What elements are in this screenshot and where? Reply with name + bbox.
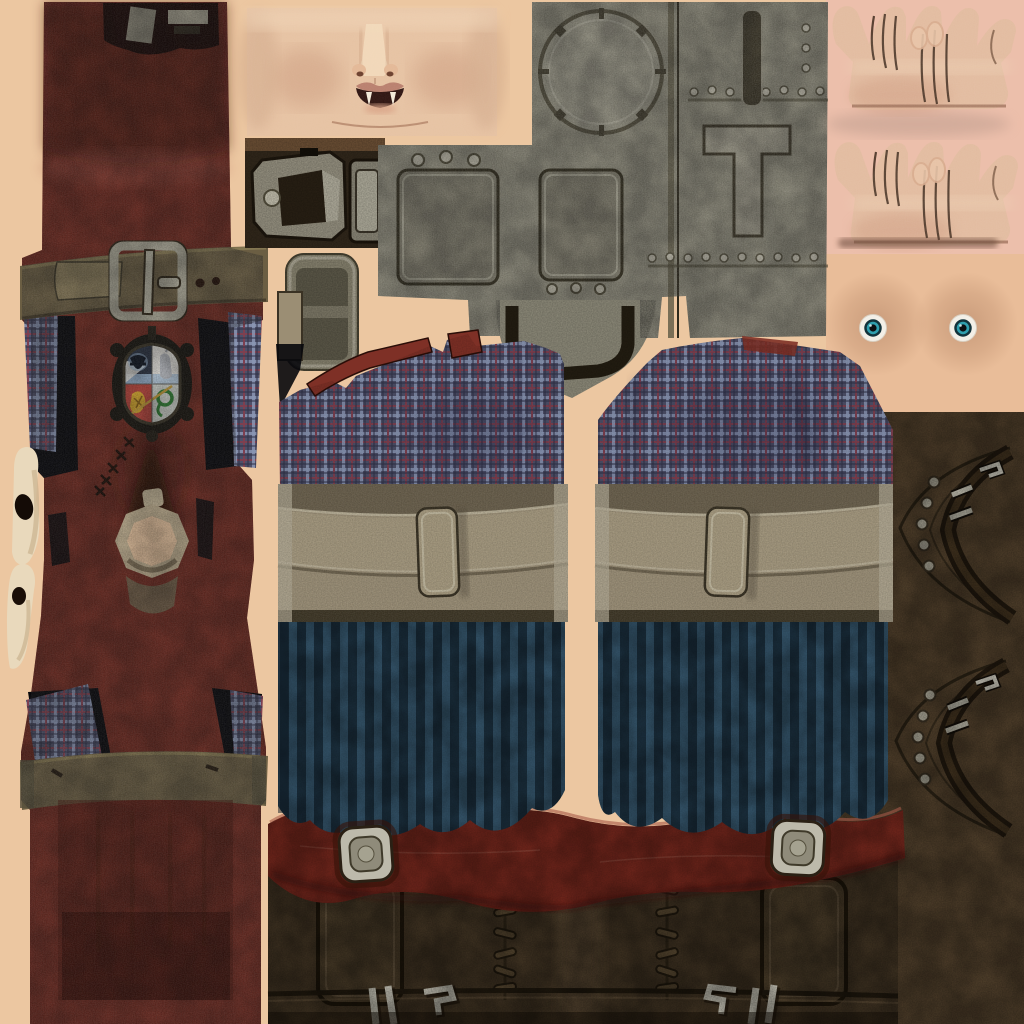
patch-grain: [245, 138, 385, 248]
trouser-right: [598, 618, 888, 834]
eye-highlight: [869, 324, 872, 327]
waistband-right: [595, 484, 893, 622]
robe-grain-light: [21, 2, 266, 1024]
hand-shadow-smear: [826, 111, 1010, 137]
trouser-right-grain: [598, 618, 888, 834]
face-skin-texture: [238, 8, 506, 136]
hand-baseline-bar: [838, 238, 998, 248]
shirt-panel-right: [595, 336, 893, 622]
trouser-left: [278, 618, 565, 836]
ear-hole-lower: [12, 587, 26, 605]
texture-atlas: [0, 0, 1024, 1024]
texture-atlas-canvas: [0, 0, 1024, 1024]
eye-left: [860, 315, 887, 342]
face-grain: [247, 8, 497, 136]
buckle-hardware-set: [245, 138, 385, 248]
eye-highlight: [959, 324, 962, 327]
waistband-right-light: [595, 484, 893, 622]
eye-right: [950, 315, 977, 342]
trouser-left-grain: [278, 618, 565, 836]
hand-textures: [826, 6, 1018, 249]
waistband-left: [278, 484, 568, 622]
boot-belt-buckle-right: [766, 815, 829, 880]
trouser-left-edge: [278, 618, 288, 813]
boot-belt-buckle-left: [334, 821, 398, 887]
waistband-left-light: [278, 484, 568, 622]
